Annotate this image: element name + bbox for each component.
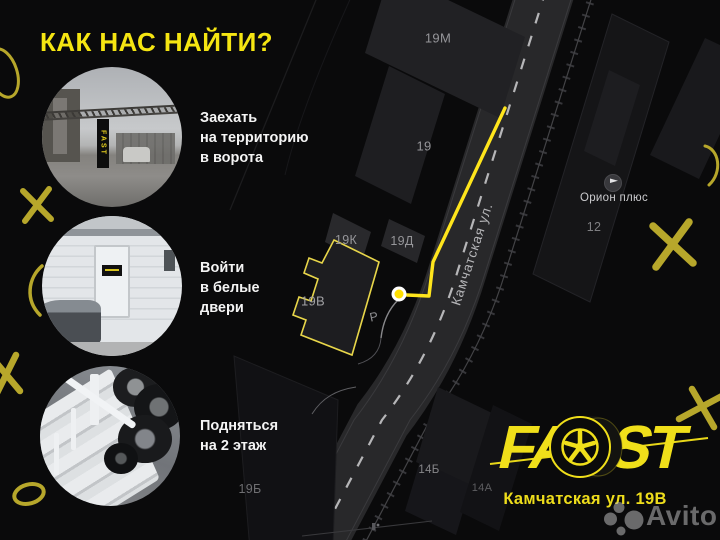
logo-text-left: FA [493, 417, 579, 478]
photo-white-doors [42, 216, 182, 356]
map-label-parking: Р [368, 309, 379, 324]
photo-stairs-baluster [54, 433, 59, 475]
map-label-orion: Орион плюс [580, 192, 648, 204]
photo-stairs-tire [104, 443, 138, 474]
photo-gates-fast-sign: FAST [97, 119, 110, 168]
destination-dot-ring [392, 287, 407, 302]
photo-gates-car [123, 147, 150, 162]
caption-line: Подняться [200, 416, 278, 436]
bus-stop-dot [377, 524, 380, 527]
map-label-19d: 19Д [390, 234, 413, 248]
building-19m [365, 0, 525, 118]
photo-doors-sky [42, 216, 182, 229]
caption-line: на территорию [200, 128, 309, 148]
building-orion-wing [584, 70, 640, 166]
caption-line: в белые [200, 278, 260, 298]
step-2-caption: Войти в белые двери [200, 258, 260, 318]
photo-stairs [40, 366, 180, 506]
avito-watermark-text: Avito [646, 500, 717, 532]
doodle-x-icon [653, 222, 693, 267]
map-label-19b: 19Б [238, 482, 261, 496]
bus-stop-icon [372, 523, 376, 530]
map-label-19v: 19В [301, 294, 325, 309]
photo-doors-shutter [164, 250, 175, 271]
caption-line: двери [200, 298, 260, 318]
territory-entry-path [312, 387, 356, 414]
map-label-19m: 19М [425, 31, 451, 46]
street-name-label: Камчатская ул. [448, 201, 495, 308]
doodle-arc-icon [705, 146, 718, 185]
caption-line: Заехать [200, 108, 309, 128]
photo-doors-car [42, 300, 101, 343]
promo-screenshot: 19М 19 19К 19Д 19В Р Орион плюс 12 14Б 1… [0, 0, 720, 540]
parking-loop-path [358, 338, 381, 364]
map-label-14b: 14Б [418, 464, 439, 476]
photo-gates-building-2 [53, 98, 67, 154]
building-ne [650, 38, 720, 179]
building-orion [533, 14, 669, 302]
logo-text-right: ST [605, 417, 691, 478]
caption-line: на 2 этаж [200, 436, 278, 456]
step-1-caption: Заехать на территорию в ворота [200, 108, 309, 168]
photo-doors-ground [42, 342, 182, 356]
caption-line: Войти [200, 258, 260, 278]
road-edge [288, 0, 518, 540]
doodle-x-icon [0, 355, 20, 403]
poi-flag-glyph [610, 179, 618, 188]
crossing-line [302, 521, 432, 536]
page-title: КАК НАС НАЙТИ? [40, 27, 273, 58]
fast-sign-text: FAST [99, 130, 106, 156]
map-label-19k: 19К [335, 233, 357, 247]
doodle-o-icon [0, 45, 24, 101]
photo-doors-sign [102, 265, 123, 275]
map-label-12: 12 [587, 220, 602, 234]
doodle-arc-icon [30, 266, 42, 315]
step-3-caption: Подняться на 2 этаж [200, 416, 278, 456]
photo-stairs-baluster [71, 408, 76, 450]
route-line [407, 108, 505, 296]
poi-flag-icon [605, 175, 622, 192]
destination-dot [395, 290, 404, 299]
map-label-19: 19 [416, 139, 431, 154]
photo-gates: FAST [42, 67, 182, 207]
building-19 [355, 66, 445, 204]
photo-doors-roof [42, 229, 182, 236]
caption-line: в ворота [200, 148, 309, 168]
parking-entry-path [381, 300, 398, 338]
